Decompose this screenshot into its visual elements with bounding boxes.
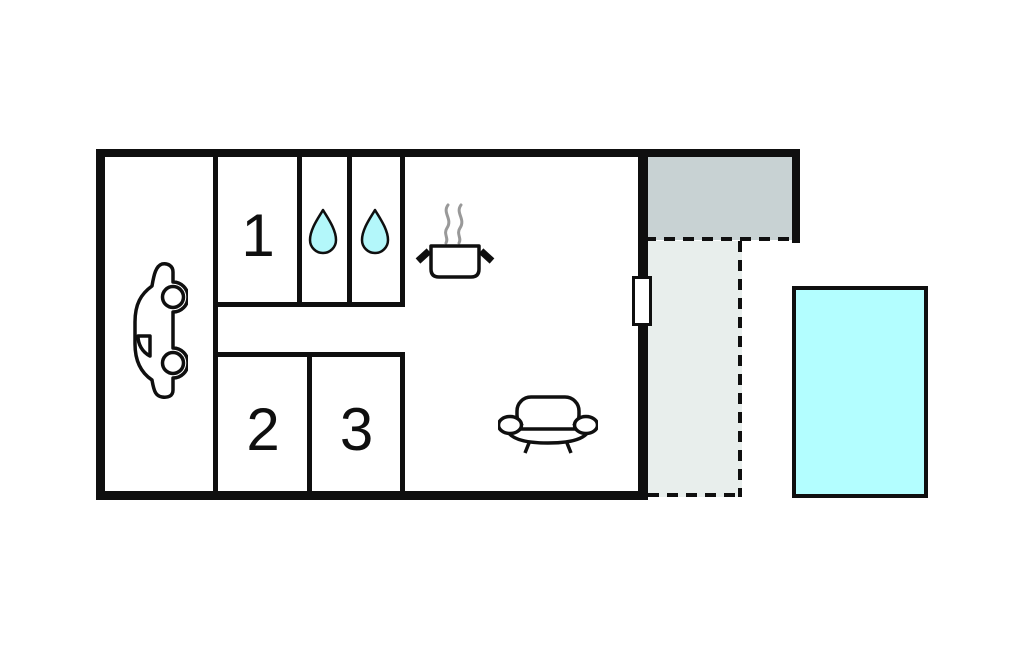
pool-area [792,286,928,498]
sofa-icon [498,392,598,454]
water-drop-icon [305,207,341,259]
water-drop-icon [357,207,393,259]
room3-label: 3 [312,399,401,461]
floor-plan: 1 2 3 [0,0,1024,652]
porch-dashed-edge [645,237,800,241]
car-icon [126,260,188,400]
cooking-pot-icon [415,200,495,282]
wall-bottom [96,491,648,500]
wall-top [96,149,800,157]
covered-porch-area [648,157,792,240]
wall-left [96,149,105,500]
top-row-bottom-wall [213,302,405,307]
terrace-dashed-bottom-edge [648,493,742,497]
shower-divider-wall [347,157,352,307]
room2-label: 2 [218,399,308,461]
showers-right-wall [400,157,405,307]
steam-icon [446,205,462,243]
door-window [632,276,652,326]
terrace-dashed-right-edge [738,241,742,497]
terrace-area [648,241,742,497]
room1-label: 1 [218,205,298,267]
porch-right-wall [792,149,800,243]
